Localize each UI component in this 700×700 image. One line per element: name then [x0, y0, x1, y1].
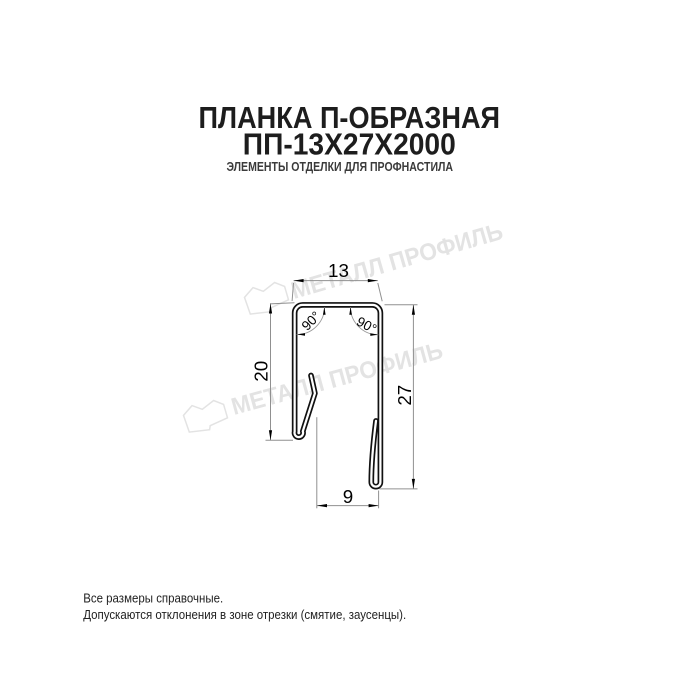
svg-text:27: 27: [394, 385, 415, 406]
svg-text:Все размеры справочные.: Все размеры справочные.: [83, 591, 223, 606]
svg-text:МЕТАЛЛ ПРОФИЛЬ: МЕТАЛЛ ПРОФИЛЬ: [288, 218, 506, 305]
svg-text:20: 20: [251, 361, 272, 382]
svg-text:13: 13: [328, 260, 349, 281]
svg-text:90°: 90°: [299, 308, 324, 333]
svg-text:Допускаются отклонения в зоне: Допускаются отклонения в зоне отрезки (с…: [83, 607, 406, 622]
svg-text:ПП-13Х27Х2000: ПП-13Х27Х2000: [243, 127, 456, 161]
svg-text:90°: 90°: [354, 314, 379, 337]
svg-text:ЭЛЕМЕНТЫ ОТДЕЛКИ ДЛЯ ПРОФНАСТИ: ЭЛЕМЕНТЫ ОТДЕЛКИ ДЛЯ ПРОФНАСТИЛА: [227, 159, 454, 174]
svg-text:9: 9: [343, 486, 353, 507]
